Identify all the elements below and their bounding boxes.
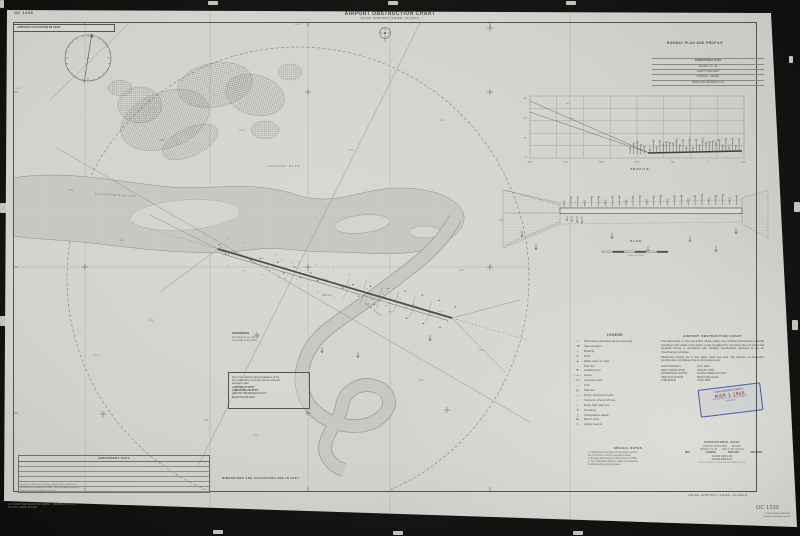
- registration-mark: [794, 202, 800, 212]
- legend-item-label: Triangulation station: [584, 413, 609, 417]
- legend-item-label: Mean high water line: [584, 403, 610, 407]
- operational-info-row: RUNWAY 10-28 . . . 4000 X 100 GRAVEL: [676, 448, 768, 451]
- scanned-chart-photo: 624871665974528131025596884557: [0, 0, 800, 536]
- soundings-line: river stage of July 1954: [232, 339, 296, 342]
- legend-symbol-icon: 8: [571, 408, 584, 412]
- operational-data-box-row: EFFECTIVE GRADIENT 0.2%: [652, 80, 764, 85]
- registration-mark: [0, 203, 6, 213]
- legend-item-label: Building: [584, 349, 594, 353]
- chart-paper: 624871665974528131025596884557: [0, 0, 800, 536]
- registration-mark: [213, 530, 223, 534]
- amendment-note: Corrections affecting the safety of flig…: [20, 484, 170, 493]
- operational-footnote: FOR COMPLETE DATA SEE AIRMAN'S GUIDE: [676, 462, 768, 465]
- legend: LEGEND ⊥ Obstruction (elevation above se…: [571, 333, 659, 427]
- footer-chart-number: OC 1233: [756, 505, 779, 511]
- description-para1: This chart shows, in plan and profile, o…: [661, 340, 764, 354]
- legend-item-label: Power transmission line: [584, 393, 614, 397]
- footer-imprint: C 55-8-2 EGE (20JUN55) Coast and Geodeti…: [730, 513, 790, 519]
- town-label: ANIAK: [322, 294, 332, 297]
- description-block: AIRPORT OBSTRUCTION CHART This chart sho…: [661, 335, 764, 383]
- operational-table-row: 28 4000 4000 0.2%: [676, 458, 768, 461]
- registration-mark: [792, 320, 798, 330]
- special-notes: SPECIAL NOTES 1. Obstructions less than …: [588, 447, 668, 466]
- description-fact: PUBLISHED JUNE 1955: [661, 379, 764, 383]
- legend-symbol-icon: ✶: [571, 422, 584, 426]
- registration-mark: [0, 0, 4, 8]
- chart-subtitle: ANIAK AIRPORT, ANIAK, ALASKA: [290, 17, 490, 21]
- legend-item-label: Isolated trees: [584, 368, 601, 372]
- runway-section-header: RUNWAY PLAN AND PROFILE: [645, 41, 745, 45]
- legend-symbol-icon: ⊥: [571, 339, 584, 343]
- legend-item-label: Sounding: [584, 408, 596, 412]
- reference-line: adopted to date.: [232, 382, 306, 385]
- legend-symbol-icon: —·—: [571, 393, 584, 397]
- legend-symbol-icon: ≈: [571, 403, 584, 407]
- registration-mark: [573, 531, 583, 535]
- legend-symbol-icon: ┼┼: [571, 388, 584, 392]
- legend-item-label: Trail: [584, 383, 589, 387]
- legend-title: LEGEND: [571, 333, 659, 337]
- registration-mark: [388, 1, 398, 5]
- mount-fineprint: U.S. COAST AND GEODETIC SURVEY · WASHING…: [8, 503, 75, 509]
- legend-symbol-icon: —x—: [571, 373, 584, 377]
- legend-item-label: Obstruction (elevation above sea level): [584, 339, 632, 343]
- registration-mark: [393, 531, 403, 535]
- legend-item-label: Tank: [584, 354, 590, 358]
- chart-number-topleft: OC 1233: [14, 10, 33, 15]
- registration-mark: [208, 1, 218, 5]
- legend-item: ✶ Airport beacon: [571, 422, 659, 427]
- legend-symbol-icon: - - -: [571, 364, 584, 368]
- special-note-line: flooding during spring breakup.: [588, 463, 668, 466]
- legend-symbol-icon: ══: [571, 378, 584, 382]
- legend-symbol-icon: - -: [571, 383, 584, 387]
- legend-item-label: Spot elevation: [584, 344, 602, 348]
- legend-item-label: Airport beacon: [584, 422, 602, 426]
- plan-scale-label: SCALE OF FEET: [596, 255, 676, 258]
- legend-symbol-icon: ✻: [571, 368, 584, 372]
- legend-symbol-icon: ∽: [571, 398, 584, 402]
- legend-item-label: Radio tower or mast: [584, 359, 609, 363]
- elevation-note-box: AIRPORT ELEVATION 88 FEET: [13, 24, 115, 32]
- legend-item-label: Pole line: [584, 364, 595, 368]
- operational-data-box-top: OPERATIONAL DATA RUNWAY 10 - 28LENGTH 40…: [652, 58, 764, 86]
- description-para2: Obstruction heights are in feet above me…: [661, 356, 764, 363]
- registration-mark: [789, 56, 793, 63]
- soundings-note: SOUNDINGS Soundings in feet refer torive…: [232, 332, 296, 342]
- legend-item-label: Railroad: [584, 388, 594, 392]
- fact-label: PUBLISHED: [661, 379, 697, 383]
- reference-box: This chart complies with specifications …: [228, 372, 310, 409]
- footer-imprint-line2: Coast and Geodetic Survey: [730, 516, 790, 519]
- legend-symbol-icon: ●: [571, 354, 584, 358]
- registration-mark: [566, 1, 576, 5]
- legend-item-label: Bench mark: [584, 417, 599, 421]
- legend-symbol-icon: · 85: [571, 344, 584, 348]
- legend-symbol-icon: ▲: [571, 359, 584, 363]
- legend-symbol-icon: ⊠: [571, 417, 584, 421]
- legend-item-label: Improved road: [584, 378, 602, 382]
- profile-caption: PROFILE: [600, 168, 680, 172]
- mount-fineprint-line2: OC 1233 · ANIAK, ALASKA: [8, 506, 75, 509]
- plan-area-label: AIRPORT PLAN: [268, 165, 300, 169]
- legend-symbol-icon: ▪: [571, 349, 584, 353]
- legend-item-label: Fence: [584, 373, 592, 377]
- description-title: AIRPORT OBSTRUCTION CHART: [661, 335, 764, 339]
- units-note: DIMENSIONS AND ELEVATIONS ARE IN FEET: [222, 477, 299, 481]
- legend-symbol-icon: △: [571, 413, 584, 417]
- amendment-note-line: when accumulated changes warrant.: [20, 490, 170, 493]
- latitude-label: 61°35': [15, 88, 21, 91]
- operational-data-bottom: OPERATIONAL DATA AIRPORT ELEVATION . . .…: [676, 441, 768, 465]
- plan-caption: PLAN: [596, 240, 676, 244]
- footer-airport-name: ANIAK AIRPORT, ANIAK, ALASKA: [682, 494, 754, 498]
- registration-mark: [0, 316, 6, 326]
- longitude-label: 159°32': [294, 24, 301, 27]
- reference-footer-line: ELEVATION 88 FEET: [232, 396, 306, 399]
- legend-item-label: Contours, interval 25 feet: [584, 398, 615, 402]
